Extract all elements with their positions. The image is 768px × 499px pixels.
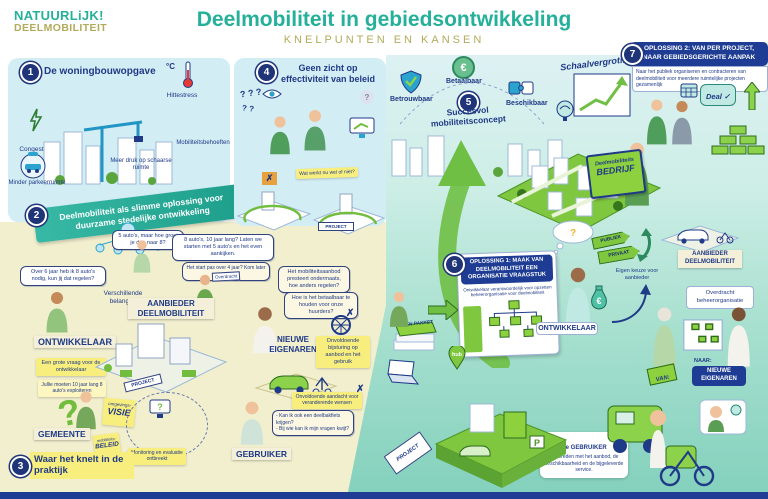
question-doodles-2: ? ? <box>242 103 255 113</box>
laptop-icon <box>384 358 424 386</box>
eigen-keuze-label: Eigen keuze voor aanbieder <box>614 268 660 281</box>
nieuwe-eigenaren-box-right: NIEUWE EIGENAREN <box>692 366 746 386</box>
hub-pin-text: hub <box>452 352 463 358</box>
corporatie-figure <box>130 238 154 276</box>
monitor-chart-icon <box>348 116 376 140</box>
naar-label: NAAR: <box>694 358 712 364</box>
bubble-8autos: 8 auto's, 10 jaar lang? Laten we starten… <box>172 234 274 261</box>
double-arrow-icon <box>636 228 658 262</box>
hittestress-label: Hittestress <box>158 92 206 100</box>
monitor-question-icon: ? <box>148 398 172 420</box>
arrow-up-icon <box>744 82 760 110</box>
minder-parkeerruimte-label: Minder parkeerruimte <box>8 180 66 187</box>
parking-letter: P <box>534 438 540 448</box>
panel4-title: Geen zicht op effectiviteit van beleid <box>278 63 378 85</box>
shield-icon <box>400 70 422 94</box>
page-title: Deelmobiliteit in gebiedsontwikkeling <box>0 8 768 32</box>
footer-bar <box>0 492 768 499</box>
meer-druk-label: Meer druk op schaarse ruimte <box>110 158 172 172</box>
money-stack-illustration <box>710 116 768 160</box>
researcher-figure-2 <box>300 104 330 158</box>
choice-arrow-icon <box>608 282 652 326</box>
no-parking-car-icon <box>18 150 48 180</box>
ontwikkelaar-figure <box>42 288 72 338</box>
eisen-arrow-icon <box>428 300 458 320</box>
deal-text: Deal ✓ <box>706 92 730 101</box>
eye-icon <box>262 88 282 100</box>
oplossing2-line2: NAAR GEBIEDSGERICHTE AANPAK <box>632 54 766 63</box>
bubble-gebruiker-vragen: - Kan ik ook een deelbakfiets krijgen? -… <box>272 410 354 436</box>
aanbieder-platform-illustration <box>660 218 740 252</box>
deal-bubble: Deal ✓ <box>700 84 736 106</box>
note-aandacht: Onvoldoende aandacht voor veranderende w… <box>292 392 362 409</box>
project-loop-illustration <box>236 186 386 236</box>
panel3-title: Waar het knelt in de praktijk <box>30 452 134 479</box>
badge-1: 1 <box>20 62 41 83</box>
mobility-strip <box>463 306 483 353</box>
van-text: VAN: <box>655 374 670 383</box>
project-tag-text: PROJECT <box>396 443 421 463</box>
betaalbaar-label: Betaalbaar <box>446 78 482 85</box>
bubble-vraag2: - Bij wie kan ik mijn vragen kwijt? <box>276 426 350 433</box>
panel1-title: De woningbouwopgave <box>44 66 156 77</box>
oplossing2-box: OPLOSSING 2: VAN PER PROJECT, NAAR GEBIE… <box>630 42 768 66</box>
euro-symbol: € <box>460 62 466 74</box>
oplossing1-panel: OPLOSSING 1: MAAK VAN DEELMOBILITEIT EEN… <box>456 250 560 357</box>
bubble-aanbod: Het mobiliteitsaanbod presteert ondermaa… <box>278 266 350 293</box>
note-monitoring: Monitoring en evaluatie ontbreekt <box>128 448 186 465</box>
x-note-icon: ✗ <box>262 172 277 185</box>
thermometer-icon <box>182 60 194 88</box>
gebruiker-figure <box>236 396 268 452</box>
bubble-over6jaar: Over 6 jaar heb ik 8 auto's nodig, kun j… <box>20 266 106 286</box>
oplossing1-box: OPLOSSING 1: MAAK VAN DEELMOBILITEIT EEN… <box>460 254 553 284</box>
svg-text:?: ? <box>157 402 163 412</box>
nieuwe-eigenaren-label-mid: NIEUWE EIGENAREN <box>262 334 324 356</box>
hub-building-illustration: P <box>430 378 570 490</box>
x-mark-text: ✗ <box>266 173 274 184</box>
cargobike-scene <box>600 388 750 488</box>
x-mark-wensen: ✗ <box>356 384 364 395</box>
badge-3: 3 <box>10 456 31 477</box>
gemeente-label: GEMEENTE <box>34 428 90 440</box>
temp-label: °C <box>166 62 175 71</box>
question-gray-circle: ? <box>360 90 374 104</box>
gebruiker-label: GEBRUIKER <box>232 448 291 460</box>
hub-pin-icon: hub <box>448 346 466 370</box>
oplossing1-subtext: Ontwikkelaar verantwoordelijk voor opzet… <box>458 284 556 299</box>
overdracht-small-label: Overdracht <box>212 271 241 281</box>
svg-text:€: € <box>596 296 601 306</box>
scale-icon <box>556 96 574 122</box>
badge-4: 4 <box>256 62 277 83</box>
badge-7: 7 <box>622 44 643 65</box>
bedrijf-folder: Deelmobiliteits BEDRIJF <box>586 149 647 199</box>
euro-coin-icon: € <box>452 56 475 79</box>
beschikbaar-label: Beschikbaar <box>506 100 548 107</box>
badge-6: 6 <box>444 254 465 275</box>
researcher-figure-1 <box>266 112 294 160</box>
oplossing2-line1: OPLOSSING 2: VAN PER PROJECT, <box>632 45 766 54</box>
ontwikkelaar-label-right: ONTWIKKELAAR <box>536 322 598 335</box>
svg-text:?: ? <box>570 228 576 239</box>
gemeente-figure-right <box>386 288 412 332</box>
infographic-poster: NATUURLiJK! DEELMOBILITEIT Deelmobilitei… <box>0 0 768 499</box>
x-mark-wheel: ✗ <box>346 308 354 319</box>
thought-cloud: ? <box>550 218 596 254</box>
puzzle-icon <box>508 80 534 96</box>
panel3-title-text: Waar het knelt in de praktijk <box>34 454 123 476</box>
question-gray-text: ? <box>365 93 370 102</box>
betrouwbaar-label: Betrouwbaar <box>390 96 433 103</box>
growth-flipchart <box>572 72 632 124</box>
project-sign-middle: PROJECT <box>318 222 354 231</box>
badge-2: 2 <box>26 205 47 226</box>
bubble-vraag1: - Kan ik ook een deelbakfiets krijgen? <box>276 413 350 426</box>
aanbieder-label-right: AANBIEDER DEELMOBILITEIT <box>678 250 742 268</box>
